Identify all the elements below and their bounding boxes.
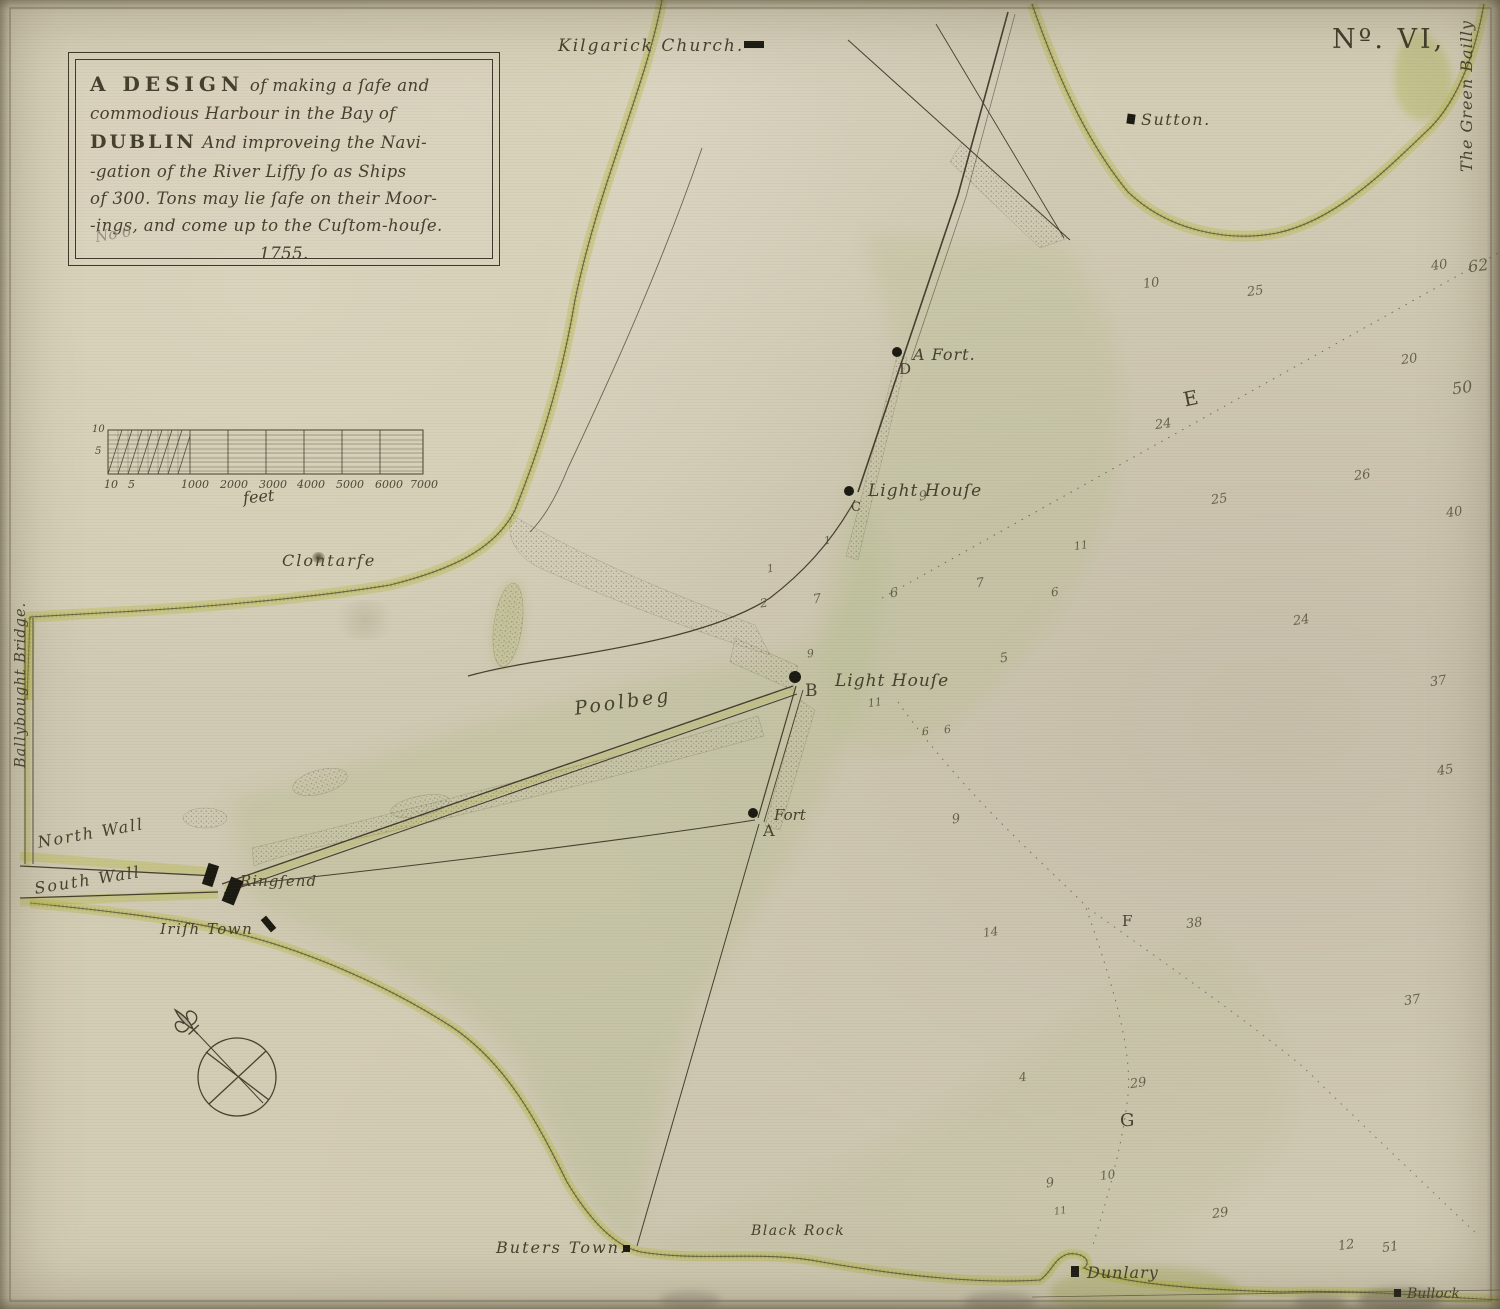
green-bailly-label: The Green Bailly xyxy=(1457,20,1476,172)
sounding-depth: 1 xyxy=(766,562,775,576)
sounding-depth: 11 xyxy=(1073,538,1089,553)
letter-d: D xyxy=(899,360,911,378)
ringsend-marker-1 xyxy=(202,863,219,887)
sounding-depth: 25 xyxy=(1210,491,1228,508)
scale-tick-label: 5000 xyxy=(336,478,364,491)
sounding-depth: 7 xyxy=(975,575,985,591)
sounding-depth: 9 xyxy=(951,811,961,827)
fort-a-dot xyxy=(748,808,758,818)
sounding-depth: 1 xyxy=(823,534,832,548)
sounding-depth: 24 xyxy=(1154,416,1172,433)
sounding-depth: 9 xyxy=(1045,1175,1055,1191)
lighthouse-b-label: Light Houſe xyxy=(835,671,949,691)
map-canvas: A DESIGN of making a ſafe and commodious… xyxy=(0,0,1500,1309)
sounding-depth: 50 xyxy=(1451,377,1474,399)
sounding-depth: 10 xyxy=(1099,1167,1116,1183)
letter-b: B xyxy=(805,681,818,701)
sounding-depth: 37 xyxy=(1429,673,1447,690)
sounding-depth: 11 xyxy=(1053,1205,1067,1218)
sounding-depth: 20 xyxy=(1400,351,1418,368)
ballybought-bridge-label: Ballybought Bridge. xyxy=(13,602,29,768)
a-fort-label: A Fort. xyxy=(913,345,976,364)
scale-tick-label: 7000 xyxy=(410,478,438,491)
sounding-depth: 7 xyxy=(812,591,822,607)
kilgarick-church-label: Kilgarick Church. xyxy=(558,36,744,56)
sounding-depth: 29 xyxy=(1129,1075,1147,1092)
sounding-depth: 9 xyxy=(806,647,815,661)
sounding-depth: 14 xyxy=(982,924,999,940)
south-wall-label: South Wall xyxy=(33,862,142,898)
letter-c: C xyxy=(851,500,861,515)
irish-town-marker xyxy=(261,916,277,933)
scale-side-label: 10 xyxy=(92,424,105,435)
clontarfe-label: Clontarfe xyxy=(282,551,376,570)
scale-tick-label: 4000 xyxy=(297,478,325,491)
scale-tick-label: 10 xyxy=(104,478,118,491)
bullock-label: Bullock xyxy=(1407,1286,1460,1302)
sounding-depth: 6 xyxy=(943,723,952,737)
sounding-depth: 6 xyxy=(889,585,899,601)
sounding-depth: 2 xyxy=(759,596,769,611)
poolbeg-label: Poolbeg xyxy=(573,684,673,719)
ringsend-label: Ringſend xyxy=(240,872,317,890)
sutton-label: Sutton. xyxy=(1141,110,1211,129)
sounding-depth: 6 xyxy=(921,725,930,739)
north-wall-label: North Wall xyxy=(36,814,146,851)
sounding-depth: 24 xyxy=(1292,612,1310,629)
letter-g: G xyxy=(1120,1110,1134,1131)
sounding-depth: 62 xyxy=(1467,255,1490,277)
labels-layer: Kilgarick Church.Sutton.The Green Bailly… xyxy=(0,0,1500,1309)
buters-town-label: Buters Town. xyxy=(496,1238,627,1257)
sounding-depth: 40 xyxy=(1430,257,1448,274)
lighthouse-b-dot xyxy=(789,671,801,683)
dunlary-label: Dunlary xyxy=(1087,1263,1159,1282)
a-fort-dot xyxy=(892,347,902,357)
sounding-depth: 38 xyxy=(1185,915,1203,932)
sounding-depth: 45 xyxy=(1436,762,1454,779)
sounding-depth: 51 xyxy=(1381,1239,1399,1256)
scale-tick-label: 1000 xyxy=(181,478,209,491)
sounding-depth: 4 xyxy=(1018,1070,1028,1085)
scale-side-label: 5 xyxy=(95,446,101,457)
black-rock-label: Black Rock xyxy=(751,1223,845,1239)
kilgarick-church-marker xyxy=(744,41,764,48)
sounding-depth: 12 xyxy=(1337,1237,1355,1254)
letter-e: E xyxy=(1181,385,1200,412)
ringsend-marker-2 xyxy=(222,877,244,906)
letter-a: A xyxy=(763,821,775,840)
sounding-depth: 10 xyxy=(1142,275,1160,292)
sounding-depth: 11 xyxy=(867,695,883,710)
buters-town-marker xyxy=(623,1245,630,1252)
sounding-depth: 25 xyxy=(1246,283,1264,300)
sounding-depth: 37 xyxy=(1403,992,1421,1009)
dunlary-marker xyxy=(1071,1266,1079,1277)
bullock-marker xyxy=(1394,1289,1401,1297)
scale-unit-label: feet xyxy=(242,486,275,508)
sounding-depth: 40 xyxy=(1445,504,1463,521)
scale-tick-label: 6000 xyxy=(375,478,403,491)
sounding-depth: 5 xyxy=(999,650,1009,666)
sounding-depth: 6 xyxy=(1050,585,1060,600)
lighthouse-c-dot xyxy=(844,486,854,496)
sounding-depth: 29 xyxy=(1211,1205,1229,1222)
sounding-depth: 26 xyxy=(1353,467,1371,484)
fort-a-label: Fort xyxy=(774,806,806,824)
irish-town-label: Iriſh Town xyxy=(160,920,253,938)
sutton-marker xyxy=(1126,113,1135,124)
letter-f: F xyxy=(1122,912,1132,930)
scale-tick-label: 5 xyxy=(128,478,135,491)
